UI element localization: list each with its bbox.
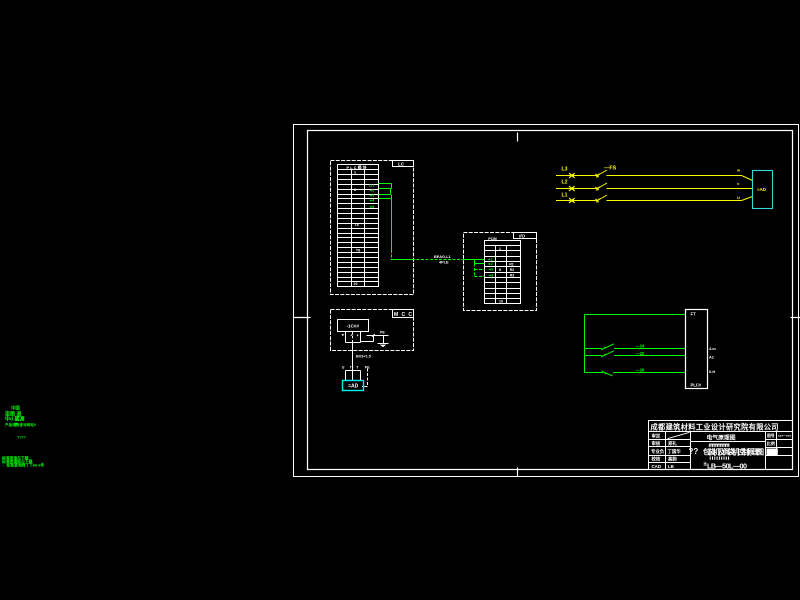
svg-text:▼: ▼	[356, 333, 359, 337]
svg-text:审定: 审定	[652, 433, 661, 440]
svg-text:产品标准查询网站0: 产品标准查询网站0	[5, 422, 36, 427]
svg-text:FT: FT	[691, 312, 697, 317]
svg-text:◄5: ◄5	[369, 205, 375, 209]
svg-text:郑礼: 郑礼	[668, 440, 677, 447]
svg-text:PE: PE	[380, 331, 385, 335]
svg-text:◄4: ◄4	[488, 274, 494, 278]
svg-text:10: 10	[499, 300, 503, 304]
svg-text:U: U	[342, 366, 345, 370]
svg-text:PCM: PCM	[488, 237, 496, 241]
svg-text:BEAG-L1: BEAG-L1	[434, 255, 451, 259]
svg-text:MCC: MCC	[394, 312, 412, 318]
svg-text:LB—50L—00: LB—50L—00	[707, 462, 747, 471]
svg-text:丁国华: 丁国华	[668, 448, 682, 455]
svg-text:CAD: CAD	[652, 464, 662, 469]
svg-text:L3: L3	[562, 167, 568, 173]
svg-text:→ 标准查询网了下66-6年: → 标准查询网了下66-6年	[2, 462, 45, 467]
svg-text:R2: R2	[510, 268, 515, 272]
svg-text:↶: ↶	[350, 334, 354, 338]
svg-text:L1: L1	[562, 193, 568, 199]
svg-text::: :	[767, 442, 768, 446]
svg-text:L2: L2	[562, 180, 568, 186]
svg-text:1: 1	[354, 171, 356, 175]
svg-text:??: ??	[689, 447, 699, 456]
svg-text:T8: T8	[354, 223, 358, 227]
svg-text:校核: 校核	[652, 455, 661, 462]
svg-text:LB: LB	[668, 464, 674, 469]
svg-text:4PLE: 4PLE	[439, 261, 449, 265]
svg-text:◄3: ◄3	[488, 268, 494, 272]
svg-text:R1: R1	[509, 263, 514, 267]
svg-text:电气原理图: 电气原理图	[707, 433, 736, 441]
svg-text:◄4: ◄4	[369, 199, 375, 203]
svg-text:0-H: 0-H	[709, 370, 715, 374]
svg-text:1: 1	[499, 247, 501, 251]
svg-text:◄2: ◄2	[487, 262, 493, 266]
svg-text:—24: —24	[636, 343, 646, 348]
svg-text:=AD: =AD	[348, 384, 359, 390]
svg-text:◄1: ◄1	[487, 257, 493, 261]
svg-text:成都建筑材料工业设计研究院有限公司: 成都建筑材料工业设计研究院有限公司	[651, 422, 779, 431]
svg-text:xxx—xxx: xxx—xxx	[778, 434, 791, 438]
svg-text:◄2: ◄2	[369, 189, 375, 193]
svg-text:LC: LC	[398, 162, 405, 167]
svg-text:Γ˥: Γ˥	[350, 365, 354, 369]
svg-text:A2: A2	[709, 355, 714, 359]
svg-text:—25: —25	[636, 351, 646, 356]
svg-text:PLC#: PLC#	[691, 383, 702, 388]
svg-text:????: ????	[17, 434, 27, 439]
svg-text:高韵: 高韵	[668, 455, 677, 462]
svg-text:—26: —26	[636, 367, 646, 372]
svg-text:4-m: 4-m	[709, 347, 716, 351]
svg-text:20: 20	[354, 282, 358, 286]
svg-text:中国: 中国	[11, 405, 20, 412]
svg-text:BV3×1.5: BV3×1.5	[356, 355, 371, 359]
svg-text:◄3: ◄3	[369, 194, 375, 198]
svg-text:包装机及倒袋机控制原理图: 包装机及倒袋机控制原理图	[702, 448, 764, 457]
svg-text:R3: R3	[510, 273, 515, 277]
svg-text:I/O: I/O	[519, 234, 526, 239]
svg-text:—FS: —FS	[604, 166, 617, 172]
svg-text:U: U	[737, 195, 740, 200]
svg-text:-1C##: -1C##	[347, 323, 360, 328]
svg-text:8: 8	[354, 188, 356, 192]
svg-text:8: 8	[499, 268, 501, 272]
svg-text:审核: 审核	[652, 440, 661, 447]
svg-text:≈AD: ≈AD	[757, 187, 767, 192]
svg-text:▢1: ▢1	[369, 183, 374, 187]
svg-text:专业负: 专业负	[651, 448, 665, 455]
svg-text:T8: T8	[356, 249, 360, 253]
svg-text:图号: 图号	[767, 433, 775, 438]
